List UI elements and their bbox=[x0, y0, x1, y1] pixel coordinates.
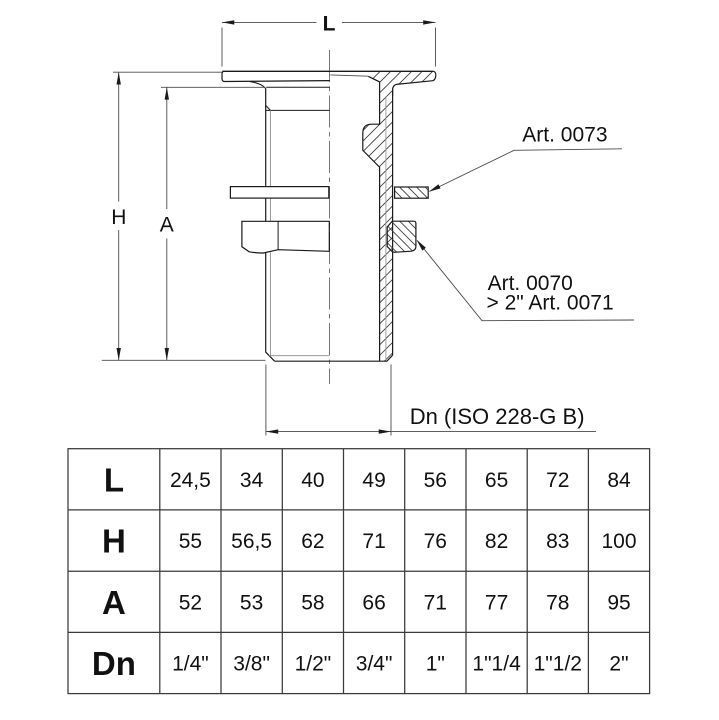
svg-text:71: 71 bbox=[362, 530, 385, 553]
svg-text:L: L bbox=[104, 461, 124, 498]
svg-text:52: 52 bbox=[179, 592, 202, 615]
svg-text:66: 66 bbox=[362, 592, 385, 615]
svg-text:H: H bbox=[102, 523, 126, 560]
svg-text:58: 58 bbox=[301, 592, 324, 615]
svg-text:56,5: 56,5 bbox=[231, 530, 272, 553]
svg-text:72: 72 bbox=[546, 469, 569, 492]
svg-text:77: 77 bbox=[485, 592, 508, 615]
svg-text:56: 56 bbox=[424, 469, 447, 492]
svg-text:83: 83 bbox=[546, 530, 569, 553]
svg-text:Dn (ISO 228-G B): Dn (ISO 228-G B) bbox=[410, 404, 585, 429]
svg-text:82: 82 bbox=[485, 530, 508, 553]
svg-text:1/4": 1/4" bbox=[172, 653, 209, 676]
svg-text:71: 71 bbox=[424, 592, 447, 615]
svg-text:1": 1" bbox=[426, 653, 445, 676]
svg-text:L: L bbox=[323, 12, 336, 35]
svg-text:100: 100 bbox=[601, 530, 636, 553]
svg-text:A: A bbox=[160, 214, 174, 237]
svg-text:> 2" Art. 0071: > 2" Art. 0071 bbox=[487, 292, 614, 315]
svg-text:24,5: 24,5 bbox=[170, 469, 211, 492]
svg-text:62: 62 bbox=[301, 530, 324, 553]
svg-text:Dn: Dn bbox=[92, 645, 136, 682]
svg-text:53: 53 bbox=[240, 592, 263, 615]
svg-text:49: 49 bbox=[362, 469, 385, 492]
svg-text:55: 55 bbox=[179, 530, 202, 553]
svg-text:3/4": 3/4" bbox=[356, 653, 393, 676]
svg-text:95: 95 bbox=[607, 592, 630, 615]
svg-text:1/2": 1/2" bbox=[295, 653, 332, 676]
svg-text:Art. 0073: Art. 0073 bbox=[522, 124, 607, 147]
svg-text:1"1/4: 1"1/4 bbox=[472, 653, 521, 676]
svg-text:1"1/2: 1"1/2 bbox=[534, 653, 582, 676]
svg-text:65: 65 bbox=[485, 469, 508, 492]
svg-text:40: 40 bbox=[301, 469, 324, 492]
svg-text:84: 84 bbox=[607, 469, 631, 492]
svg-text:78: 78 bbox=[546, 592, 569, 615]
svg-text:76: 76 bbox=[424, 530, 447, 553]
svg-text:2": 2" bbox=[609, 653, 628, 676]
svg-text:34: 34 bbox=[240, 469, 264, 492]
svg-text:3/8": 3/8" bbox=[233, 653, 270, 676]
svg-text:H: H bbox=[111, 206, 126, 229]
svg-text:A: A bbox=[102, 584, 126, 621]
